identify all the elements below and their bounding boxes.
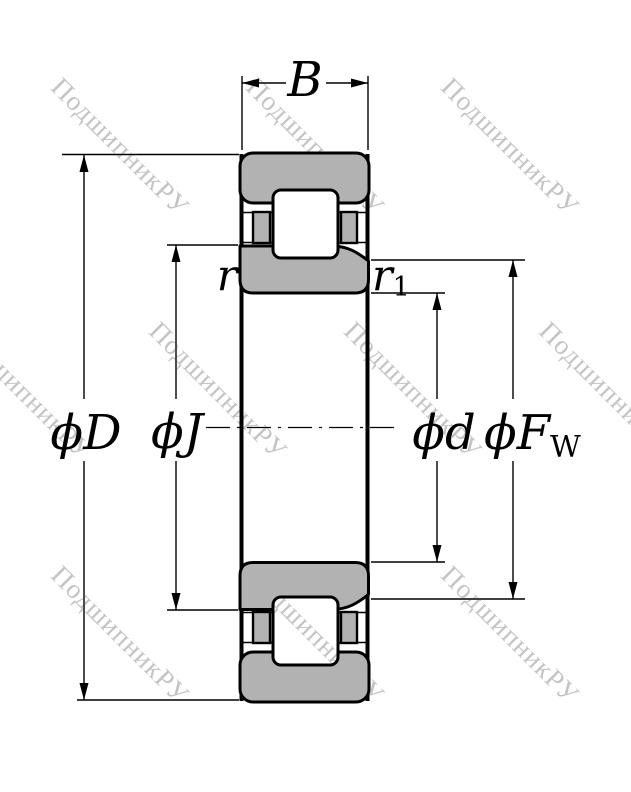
arrowhead-up-icon [509, 260, 518, 277]
raceway-diameter-dimension-FW: ϕFW [371, 260, 581, 599]
arrowhead-down-icon [433, 545, 442, 562]
chamfer-r1-subscript: 1 [393, 272, 410, 303]
width-label: B [286, 52, 322, 108]
chamfer-r1-main: r [372, 251, 395, 301]
arrowhead-left-icon [242, 79, 259, 88]
arrowhead-down-icon [80, 683, 89, 700]
flange-diameter-label: ϕJ [151, 404, 206, 460]
arrowhead-right-icon [351, 79, 368, 88]
roller-lower [273, 597, 338, 665]
chamfer-label-r1: r1 [372, 251, 410, 303]
arrowhead-up-icon [80, 155, 89, 172]
roller-upper [273, 190, 338, 258]
cage-bar-upper-left [253, 212, 270, 243]
cage-bar-lower-right [341, 612, 357, 643]
cage-bar-upper-right [341, 212, 357, 243]
width-dimension-B: B [242, 52, 368, 150]
raceway-diameter-subscript: W [550, 430, 581, 465]
chamfer-label-r: r [217, 251, 240, 301]
cage-bar-lower-left [253, 612, 270, 643]
bore-diameter-label: ϕd [412, 405, 475, 461]
arrowhead-down-icon [509, 582, 518, 599]
bearing-cross-section-diagram: B ϕD ϕJ ϕd ϕFW [0, 0, 631, 792]
arrowhead-down-icon [172, 593, 181, 610]
outer-diameter-label: ϕD [50, 405, 121, 461]
bearing-drawing-page: { "watermark": { "text": "ПодшипникРУ", … [0, 0, 631, 792]
raceway-diameter-main: ϕF [484, 405, 552, 461]
arrowhead-up-icon [172, 245, 181, 262]
arrowhead-up-icon [433, 293, 442, 310]
raceway-diameter-label: ϕFW [484, 405, 581, 465]
